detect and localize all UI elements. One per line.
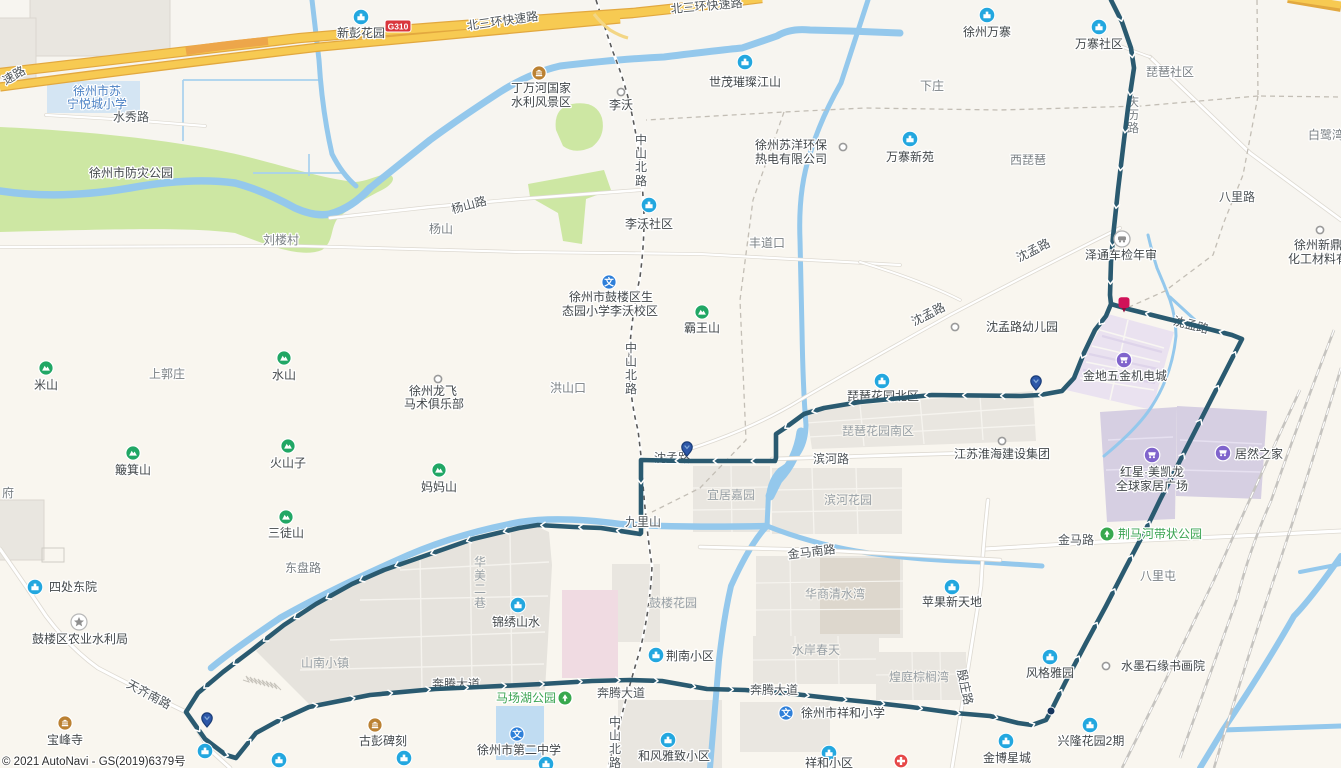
- svg-text:府: 府: [2, 485, 14, 500]
- svg-text:徐州苏洋环保: 徐州苏洋环保: [755, 137, 827, 152]
- svg-text:奔腾大道: 奔腾大道: [597, 685, 645, 700]
- svg-text:九里山: 九里山: [625, 515, 661, 529]
- svg-text:古彭碑刻: 古彭碑刻: [359, 733, 407, 748]
- svg-text:中山北路: 中山北路: [635, 132, 647, 188]
- svg-text:金地五金机电城: 金地五金机电城: [1083, 368, 1167, 383]
- svg-text:火山子: 火山子: [270, 456, 306, 470]
- svg-text:奔腾大道: 奔腾大道: [750, 682, 798, 697]
- svg-text:琵琶花园南区: 琵琶花园南区: [842, 423, 914, 438]
- svg-text:徐州市第二中学: 徐州市第二中学: [477, 742, 561, 757]
- svg-text:热电有限公司: 热电有限公司: [755, 152, 827, 166]
- svg-text:八里屯: 八里屯: [1140, 569, 1176, 583]
- svg-text:水利风景区: 水利风景区: [511, 95, 571, 109]
- svg-text:四处东院: 四处东院: [49, 580, 97, 594]
- svg-text:鼓楼区农业水利局: 鼓楼区农业水利局: [32, 631, 128, 646]
- svg-text:锦绣山水: 锦绣山水: [492, 615, 540, 629]
- svg-text:世茂璀璨江山: 世茂璀璨江山: [709, 74, 781, 89]
- svg-text:李沃: 李沃: [609, 97, 633, 112]
- svg-text:米山: 米山: [34, 378, 58, 392]
- svg-text:下庄: 下庄: [920, 78, 944, 93]
- svg-text:徐州市祥和小学: 徐州市祥和小学: [801, 705, 885, 720]
- svg-text:三徒山: 三徒山: [268, 526, 304, 540]
- svg-text:苹果新天地: 苹果新天地: [922, 594, 982, 609]
- svg-text:宁悦城小学: 宁悦城小学: [67, 96, 127, 111]
- svg-text:化工材料有: 化工材料有: [1288, 252, 1341, 266]
- svg-text:簸箕山: 簸箕山: [115, 462, 151, 477]
- svg-text:全球家居广场: 全球家居广场: [1116, 478, 1188, 493]
- svg-text:鼓楼花园: 鼓楼花园: [649, 595, 697, 610]
- svg-text:马场湖公园: 马场湖公园: [496, 690, 556, 705]
- svg-text:风格雅园: 风格雅园: [1026, 665, 1074, 680]
- svg-text:金马路: 金马路: [1058, 532, 1094, 547]
- svg-text:丁万河国家: 丁万河国家: [511, 80, 571, 95]
- svg-text:山南小镇: 山南小镇: [301, 655, 349, 670]
- svg-text:万寨社区: 万寨社区: [1075, 36, 1123, 51]
- svg-text:马术俱乐部: 马术俱乐部: [404, 396, 464, 411]
- svg-text:兴隆花园2期: 兴隆花园2期: [1058, 733, 1125, 748]
- svg-text:水岸春天: 水岸春天: [792, 643, 840, 657]
- svg-text:荆南小区: 荆南小区: [666, 648, 714, 663]
- svg-text:华商清水湾: 华商清水湾: [805, 586, 865, 601]
- svg-text:荆马河带状公园: 荆马河带状公园: [1118, 527, 1202, 541]
- svg-text:宜居嘉园: 宜居嘉园: [707, 487, 755, 502]
- svg-text:水山: 水山: [272, 368, 296, 382]
- svg-text:新彭花园: 新彭花园: [337, 25, 385, 40]
- svg-text:G310: G310: [388, 22, 409, 32]
- svg-text:徐州龙飞: 徐州龙飞: [409, 383, 457, 398]
- svg-text:滨河花园: 滨河花园: [824, 492, 872, 507]
- svg-text:上郭庄: 上郭庄: [149, 366, 185, 381]
- svg-text:琵琶社区: 琵琶社区: [1146, 64, 1194, 79]
- svg-text:红星·美凯龙: 红星·美凯龙: [1120, 464, 1184, 479]
- svg-text:煌庭棕榈湾: 煌庭棕榈湾: [889, 669, 949, 684]
- svg-text:江苏淮海建设集团: 江苏淮海建设集团: [954, 446, 1050, 461]
- svg-text:徐州万寨: 徐州万寨: [963, 24, 1011, 39]
- svg-text:丰道口: 丰道口: [749, 236, 785, 250]
- svg-text:和风雅致小区: 和风雅致小区: [638, 748, 710, 763]
- svg-text:沈孟路幼儿园: 沈孟路幼儿园: [986, 319, 1058, 334]
- svg-text:金博星城: 金博星城: [983, 750, 1031, 765]
- svg-text:水秀路: 水秀路: [113, 109, 149, 124]
- svg-text:华美二巷: 华美二巷: [474, 555, 486, 610]
- svg-text:徐州新鼎: 徐州新鼎: [1294, 237, 1341, 252]
- svg-text:中山北路: 中山北路: [609, 714, 621, 768]
- svg-text:徐州市鼓楼区生: 徐州市鼓楼区生: [569, 289, 653, 304]
- svg-text:霸王山: 霸王山: [684, 321, 720, 335]
- svg-text:八里路: 八里路: [1219, 189, 1255, 204]
- svg-text:态园小学李沃校区: 态园小学李沃校区: [562, 303, 658, 318]
- svg-text:© 2021 AutoNavi - GS(2019)6379: © 2021 AutoNavi - GS(2019)6379号: [2, 755, 186, 768]
- svg-text:徐州市苏: 徐州市苏: [73, 83, 121, 98]
- svg-text:妈妈山: 妈妈山: [421, 480, 457, 494]
- svg-text:徐州市防灾公园: 徐州市防灾公园: [89, 165, 173, 180]
- svg-text:杨山: 杨山: [429, 221, 453, 236]
- svg-text:白鹭湾: 白鹭湾: [1308, 127, 1341, 142]
- svg-text:西琵琶: 西琵琶: [1010, 153, 1046, 167]
- svg-text:滨河路: 滨河路: [813, 451, 849, 466]
- svg-text:居然之家: 居然之家: [1235, 446, 1283, 461]
- svg-text:中山北路: 中山北路: [625, 340, 637, 396]
- svg-text:李沃社区: 李沃社区: [625, 216, 673, 231]
- svg-text:万寨新苑: 万寨新苑: [886, 149, 934, 164]
- svg-text:刘楼村: 刘楼村: [263, 232, 299, 247]
- svg-text:洪山口: 洪山口: [550, 381, 586, 395]
- svg-text:宝峰寺: 宝峰寺: [47, 733, 83, 747]
- svg-text:水墨石缘书画院: 水墨石缘书画院: [1121, 659, 1205, 673]
- svg-text:泽通车检年审: 泽通车检年审: [1085, 247, 1157, 262]
- svg-text:东盘路: 东盘路: [285, 560, 321, 575]
- svg-text:祥和小区: 祥和小区: [805, 756, 853, 768]
